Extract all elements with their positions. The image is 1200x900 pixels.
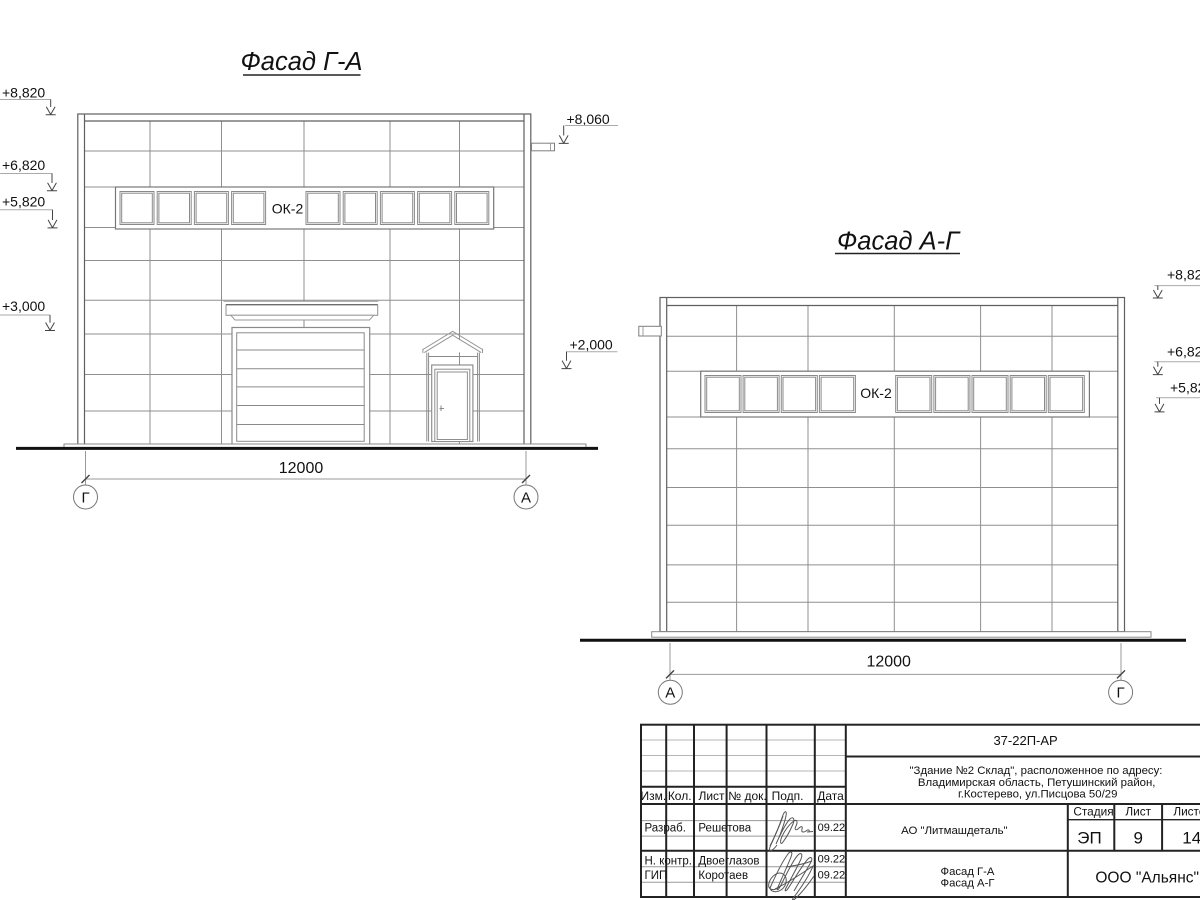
svg-text:Г: Г: [81, 489, 89, 506]
svg-text:Фасад А-Г: Фасад А-Г: [837, 228, 961, 256]
svg-text:9: 9: [1133, 829, 1142, 848]
svg-text:ГИП: ГИП: [645, 870, 668, 882]
svg-text:Стадия: Стадия: [1073, 805, 1113, 819]
svg-text:Г: Г: [1117, 685, 1125, 702]
svg-text:+8,060: +8,060: [567, 111, 610, 127]
svg-text:Лист: Лист: [698, 789, 725, 803]
svg-text:ЭП: ЭП: [1077, 829, 1101, 848]
svg-text:Дата: Дата: [817, 789, 844, 803]
svg-text:14: 14: [1182, 829, 1200, 848]
svg-text:Листов: Листов: [1173, 805, 1200, 819]
svg-text:Подп.: Подп.: [772, 789, 804, 803]
svg-text:Изм.: Изм.: [640, 789, 666, 803]
svg-text:+8,820: +8,820: [1167, 267, 1200, 283]
svg-text:09.22: 09.22: [818, 822, 846, 834]
svg-text:А: А: [665, 685, 675, 702]
svg-text:Разраб.: Разраб.: [645, 823, 686, 835]
svg-text:ОК-2: ОК-2: [860, 385, 892, 401]
svg-text:09.22: 09.22: [818, 870, 846, 882]
svg-text:"Здание №2 Склад", расположенн: "Здание №2 Склад", расположенное по адре…: [910, 765, 1163, 777]
svg-text:+6,820: +6,820: [1167, 344, 1200, 360]
svg-text:Решетова: Решетова: [698, 823, 751, 835]
svg-text:А: А: [521, 489, 531, 506]
svg-text:г.Костерево, ул.Писцова 50/29: г.Костерево, ул.Писцова 50/29: [958, 788, 1117, 800]
svg-text:ООО "Альянс": ООО "Альянс": [1095, 870, 1199, 887]
svg-text:12000: 12000: [866, 654, 911, 671]
svg-text:09.22: 09.22: [818, 854, 846, 866]
svg-text:Фасад Г-А: Фасад Г-А: [941, 866, 995, 878]
svg-text:Коротаев: Коротаев: [698, 870, 748, 882]
svg-text:Фасад А-Г: Фасад А-Г: [941, 878, 995, 890]
svg-text:Двоеглазов: Двоеглазов: [698, 856, 759, 868]
svg-text:+2,000: +2,000: [570, 337, 613, 353]
svg-text:37-22П-АР: 37-22П-АР: [993, 733, 1057, 748]
svg-text:+6,820: +6,820: [2, 157, 45, 173]
svg-text:ОК-2: ОК-2: [272, 201, 304, 217]
svg-text:+5,820: +5,820: [2, 194, 45, 210]
svg-text:Фасад Г-А: Фасад Г-А: [241, 48, 363, 76]
svg-text:Владимирская область, Петушинс: Владимирская область, Петушинский район,: [918, 777, 1156, 789]
svg-text:+8,820: +8,820: [2, 85, 45, 101]
svg-text:АО "Литмашдеталь": АО "Литмашдеталь": [901, 825, 1007, 837]
svg-text:12000: 12000: [279, 460, 324, 477]
svg-text:+5,820: +5,820: [1170, 380, 1200, 396]
svg-text:Кол.: Кол.: [668, 789, 692, 803]
svg-text:Н. контр.: Н. контр.: [645, 856, 692, 868]
svg-text:Лист: Лист: [1125, 805, 1151, 819]
svg-text:+3,000: +3,000: [2, 298, 45, 314]
svg-text:№ док.: № док.: [728, 789, 766, 803]
